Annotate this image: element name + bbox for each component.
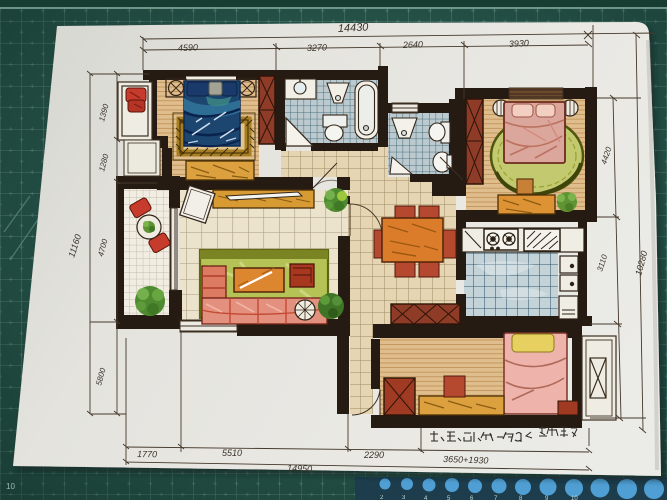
svg-text:3270: 3270 bbox=[307, 42, 327, 53]
svg-text:1770: 1770 bbox=[137, 449, 157, 459]
svg-text:2640: 2640 bbox=[402, 39, 423, 50]
svg-text:3930: 3930 bbox=[509, 38, 530, 49]
svg-text:4590: 4590 bbox=[178, 42, 198, 53]
svg-text:3650+1930: 3650+1930 bbox=[443, 454, 489, 466]
svg-text:10: 10 bbox=[6, 482, 15, 491]
svg-text:14950: 14950 bbox=[287, 463, 312, 474]
svg-text:5510: 5510 bbox=[222, 448, 242, 458]
svg-text:10: 10 bbox=[571, 496, 578, 500]
svg-text:14430: 14430 bbox=[338, 21, 370, 35]
svg-text:2290: 2290 bbox=[363, 450, 384, 460]
